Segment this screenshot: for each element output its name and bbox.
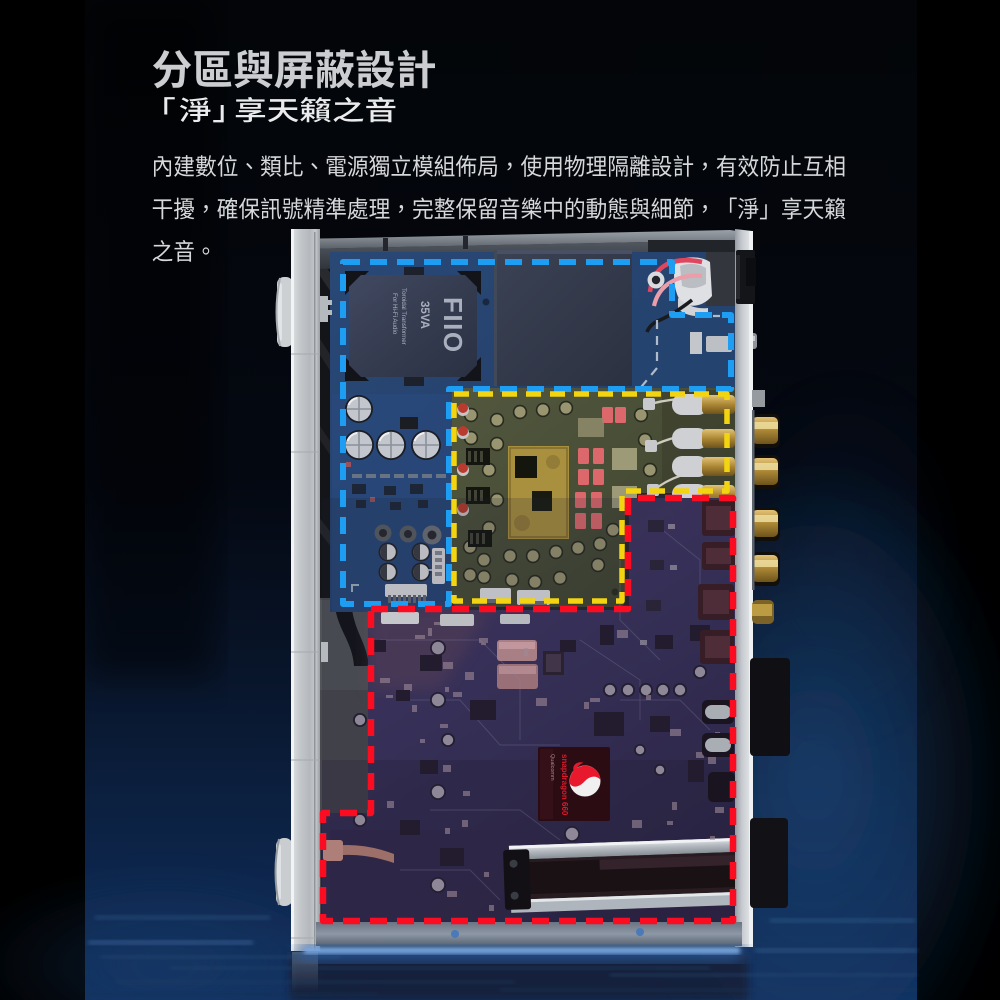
svg-text:snapdragon 660: snapdragon 660 — [560, 754, 569, 816]
svg-text:Toroidal Transformer: Toroidal Transformer — [400, 288, 407, 345]
svg-text:For Hi-Fi Audio: For Hi-Fi Audio — [391, 293, 398, 335]
svg-text:Qualcomm: Qualcomm — [549, 754, 555, 781]
svg-text:35VA: 35VA — [418, 301, 430, 329]
svg-text:FIIO: FIIO — [438, 297, 468, 354]
